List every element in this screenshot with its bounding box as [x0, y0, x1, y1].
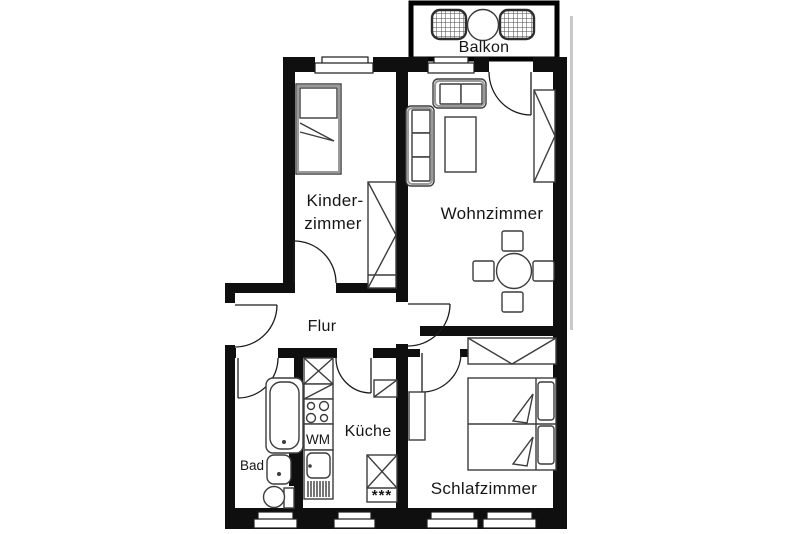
window-wohnzimmer: [428, 57, 474, 73]
window-kinderzimmer: [315, 57, 373, 73]
room-kueche: WM *** Küche: [304, 358, 397, 504]
wardrobe-icon: [368, 182, 396, 288]
building-edge-line: [570, 16, 573, 330]
kinderzimmer-door: [294, 241, 336, 283]
washbasin-icon: [267, 455, 291, 484]
room-kinderzimmer: Kinder- zimmer: [296, 84, 396, 288]
sofa-icon: [406, 106, 434, 186]
window-bad: [254, 512, 297, 528]
floor-plan: Balkon: [0, 0, 800, 534]
washing-machine-icon: WM: [304, 424, 333, 450]
balcony: Balkon: [411, 3, 557, 59]
dining-set-icon: [473, 231, 554, 312]
sink-icon: [304, 450, 333, 499]
wall-segment: [225, 345, 235, 529]
window-schlafzimmer-left: [427, 512, 478, 528]
wardrobe-icon: [468, 338, 556, 364]
single-bed-icon: [296, 84, 341, 174]
kinderzimmer-label-line2: zimmer: [304, 214, 362, 233]
wall-segment: [225, 348, 236, 358]
room-flur: Flur: [308, 318, 337, 335]
flur-label: Flur: [308, 318, 337, 335]
window-schlafzimmer-right: [483, 512, 536, 528]
entry-door: [235, 305, 277, 347]
shaft-icon: [304, 358, 333, 384]
fridge-icon: ***: [367, 455, 397, 504]
bad-label: Bad: [240, 458, 264, 473]
double-bed-icon: [468, 378, 556, 470]
schlafzimmer-door: [422, 353, 461, 392]
room-wohnzimmer: Wohnzimmer: [406, 79, 555, 312]
schlafzimmer-label: Schlafzimmer: [431, 479, 538, 498]
radiator-icon: [409, 392, 425, 440]
floor-plan-image: Balkon: [0, 0, 800, 534]
washing-machine-label: WM: [306, 432, 330, 447]
wall-segment: [225, 283, 292, 293]
kueche-door: [336, 358, 371, 393]
freezer-stars-label: ***: [372, 487, 393, 504]
balcony-label: Balkon: [459, 39, 510, 56]
balkon-door: [489, 72, 531, 115]
wohnzimmer-door: [408, 304, 450, 346]
wohnzimmer-label: Wohnzimmer: [441, 204, 544, 223]
kueche-label: Küche: [345, 423, 392, 440]
cabinet-icon: [374, 380, 397, 397]
kinderzimmer-label-line1: Kinder-: [307, 191, 364, 210]
counter-icon: [304, 384, 333, 399]
wall-segment: [396, 344, 408, 508]
wall-segment: [225, 283, 235, 303]
balcony-chair-icon: [432, 10, 466, 39]
room-bad: Bad: [240, 378, 303, 508]
sofa-icon: [433, 79, 486, 108]
wall-segment: [278, 348, 337, 358]
wall-segment: [474, 57, 489, 72]
window-kueche: [334, 512, 375, 528]
wardrobe-icon: [534, 90, 555, 182]
stove-icon: [304, 399, 333, 424]
coffee-table-icon: [445, 117, 476, 172]
toilet-icon: [264, 487, 295, 509]
wall-segment: [283, 57, 295, 293]
wall-segment: [396, 349, 420, 357]
balcony-chair-icon: [500, 10, 534, 39]
room-schlafzimmer: Schlafzimmer: [409, 338, 556, 498]
balcony-table-icon: [468, 10, 499, 41]
bathtub-icon: [266, 378, 303, 453]
